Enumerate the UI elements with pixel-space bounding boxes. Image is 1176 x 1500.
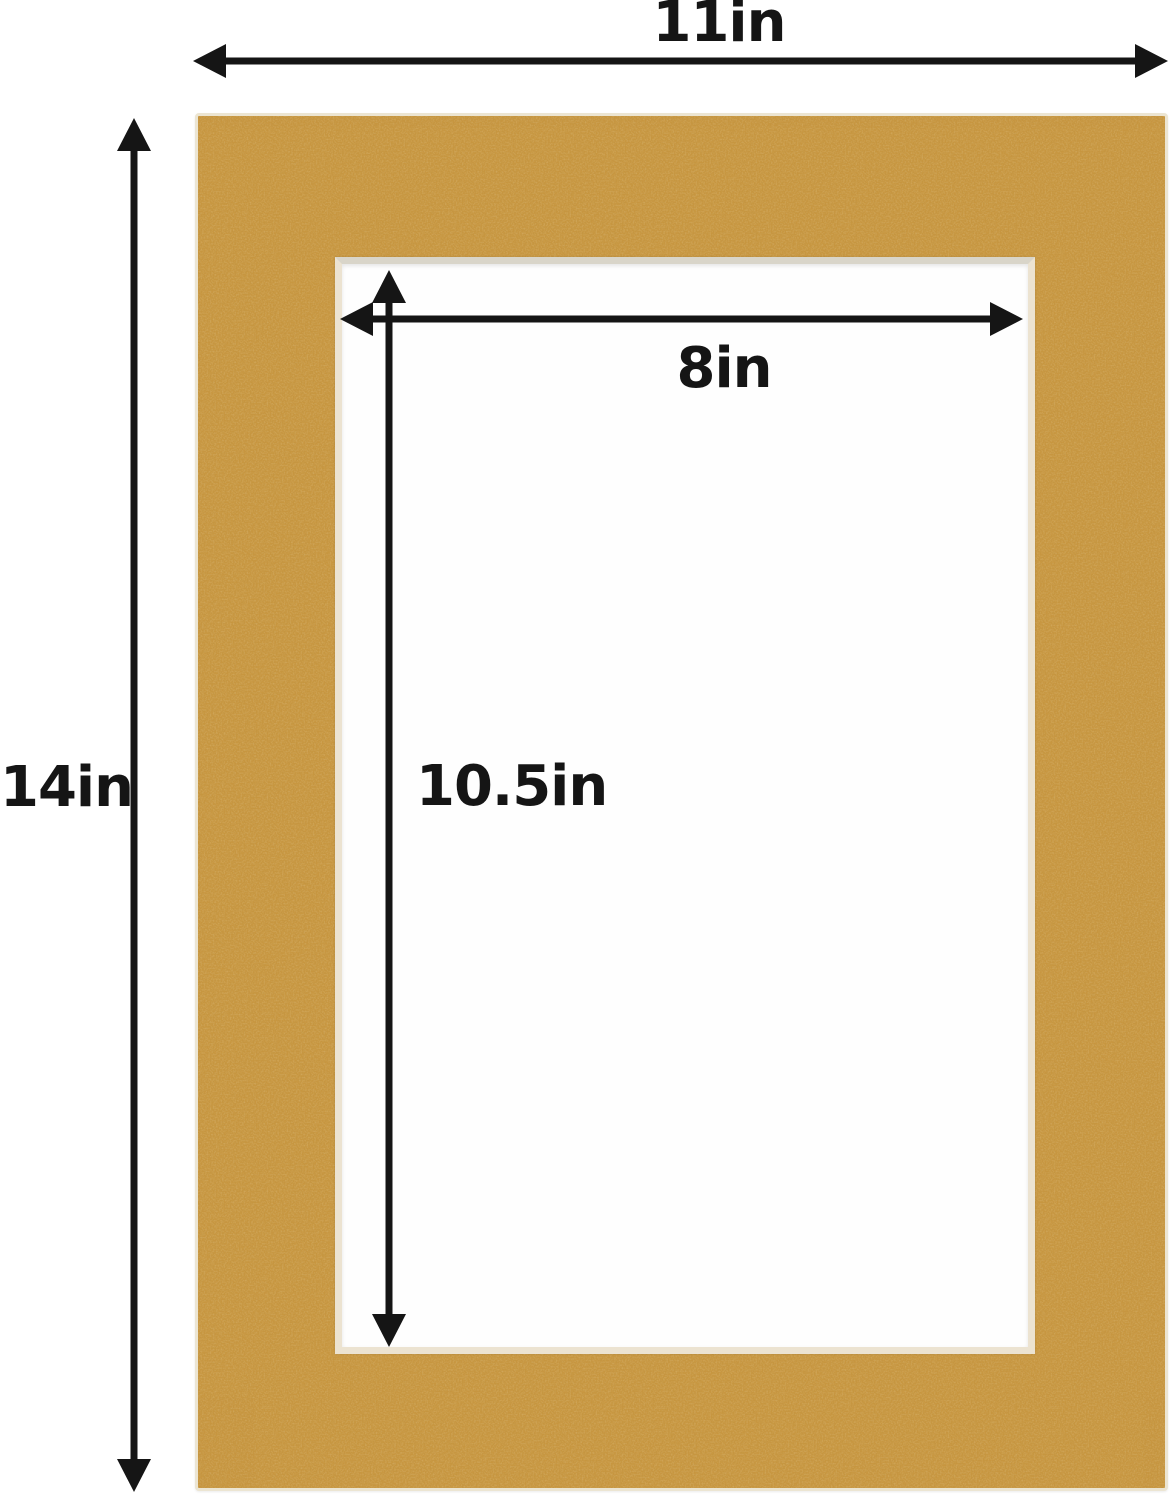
arrow-head-left-icon <box>193 44 226 78</box>
arrow-head-up-icon <box>372 270 406 303</box>
opening-height-dimension-arrow <box>371 270 407 1347</box>
arrow-head-left-icon <box>340 302 373 336</box>
arrow-head-right-icon <box>1135 44 1168 78</box>
arrow-shaft <box>219 58 1142 65</box>
opening-width-label: 8in <box>624 341 824 397</box>
opening-width-dimension-arrow <box>340 301 1023 337</box>
outer-height-label: 14in <box>0 760 118 816</box>
arrow-head-down-icon <box>372 1314 406 1347</box>
arrow-head-right-icon <box>990 302 1023 336</box>
opening-height-label: 10.5in <box>416 759 607 815</box>
arrow-head-up-icon <box>117 118 151 151</box>
arrow-shaft <box>366 316 997 323</box>
arrow-shaft <box>386 296 393 1321</box>
product-diagram: 11in 14in 8in 10.5in <box>0 0 1176 1500</box>
arrow-head-down-icon <box>117 1459 151 1492</box>
outer-width-label: 11in <box>619 0 819 51</box>
